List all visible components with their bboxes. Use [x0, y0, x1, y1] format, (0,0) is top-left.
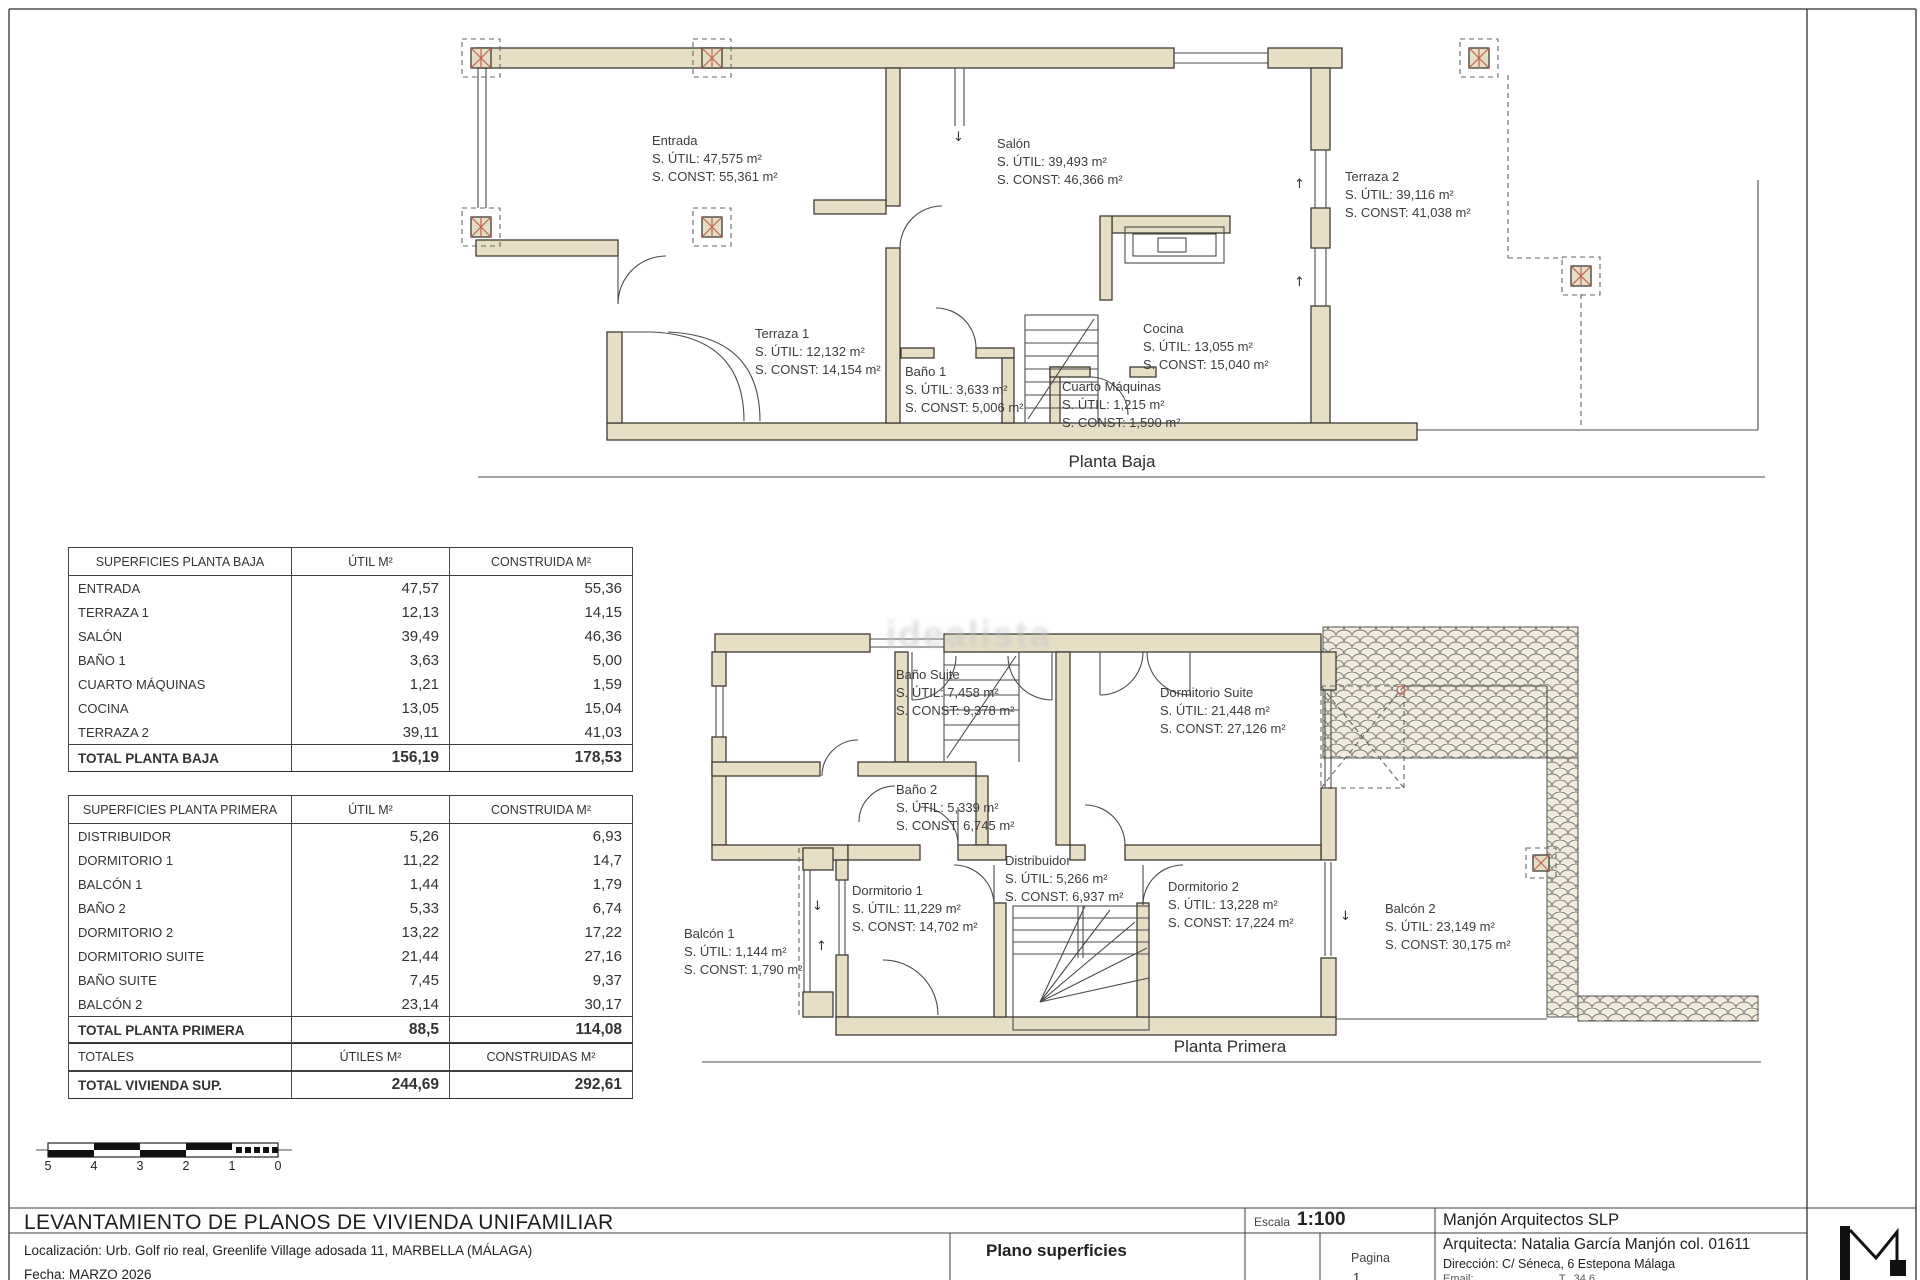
- svg-text:↓: ↓: [1340, 909, 1351, 924]
- table-cell: 1,21: [292, 672, 450, 696]
- table-cell: SALÓN: [69, 624, 292, 648]
- room-util: S. ÚTIL: 5,339 m²: [896, 799, 1014, 817]
- table-cell: 39,49: [292, 624, 450, 648]
- table-cell: 47,57: [292, 576, 450, 600]
- table-cell: 39,11: [292, 720, 450, 744]
- table-cell: COCINA: [69, 696, 292, 720]
- room-label-dormitorio-1: Dormitorio 1 S. ÚTIL: 11,229 m² S. CONST…: [852, 882, 978, 936]
- room-label-entrada: Entrada S. ÚTIL: 47,575 m² S. CONST: 55,…: [652, 132, 778, 186]
- table-cell: 1,44: [292, 872, 450, 896]
- table-cell: ÚTIL M²: [292, 548, 450, 575]
- table-cell: 46,36: [450, 624, 633, 648]
- room-util: S. ÚTIL: 23,149 m²: [1385, 918, 1511, 936]
- table-cell: CONSTRUIDA M²: [450, 796, 633, 823]
- table-cell: DORMITORIO 2: [69, 920, 292, 944]
- room-label-distribuidor: Distribuidor S. ÚTIL: 5,266 m² S. CONST:…: [1005, 852, 1123, 906]
- table-cell: 55,36: [450, 576, 633, 600]
- room-label-dormitorio-2: Dormitorio 2 S. ÚTIL: 13,228 m² S. CONST…: [1168, 878, 1294, 932]
- room-const: S. CONST: 6,745 m²: [896, 817, 1014, 835]
- table-cell: CONSTRUIDAS M²: [450, 1043, 633, 1070]
- room-util: S. ÚTIL: 7,458 m²: [896, 684, 1014, 702]
- table-header-row: SUPERFICIES PLANTA BAJAÚTIL M²CONSTRUIDA…: [69, 547, 633, 576]
- planta-baja-title: Planta Baja: [1069, 452, 1156, 472]
- table-cell: ÚTILES M²: [292, 1043, 450, 1070]
- room-name: Balcón 2: [1385, 900, 1511, 918]
- room-util: S. ÚTIL: 39,116 m²: [1345, 186, 1471, 204]
- table-cell: 21,44: [292, 944, 450, 968]
- room-label-bano-1: Baño 1 S. ÚTIL: 3,633 m² S. CONST: 5,006…: [905, 363, 1023, 417]
- location-line: Localización: Urb. Golf rio real, Greenl…: [24, 1243, 532, 1258]
- table-totales: TOTALESÚTILES M²CONSTRUIDAS M²TOTAL VIVI…: [68, 1042, 633, 1099]
- table-row: DORMITORIO 213,2217,22: [69, 920, 633, 944]
- table-cell: DORMITORIO 1: [69, 848, 292, 872]
- room-name: Terraza 1: [755, 325, 881, 343]
- room-name: Dormitorio 2: [1168, 878, 1294, 896]
- table-row: SALÓN39,4946,36: [69, 624, 633, 648]
- table-cell: 15,04: [450, 696, 633, 720]
- table-row: TERRAZA 239,1141,03: [69, 720, 633, 744]
- planta-primera-title: Planta Primera: [1174, 1037, 1286, 1057]
- room-const: S. CONST: 46,366 m²: [997, 171, 1123, 189]
- table-row: DISTRIBUIDOR5,266,93: [69, 824, 633, 848]
- table-total-row: TOTAL PLANTA PRIMERA88,5114,08: [69, 1016, 633, 1044]
- table-cell: 9,37: [450, 968, 633, 992]
- table-row: BAÑO 13,635,00: [69, 648, 633, 672]
- scale-label: 1: [229, 1159, 236, 1173]
- scale-value: 1:100: [1297, 1209, 1346, 1231]
- room-const: S. CONST: 5,006 m²: [905, 399, 1023, 417]
- table-cell: 244,69: [292, 1072, 450, 1098]
- svg-text:↑: ↑: [816, 939, 827, 954]
- page-field-label: Pagina: [1351, 1251, 1390, 1265]
- date-line: Fecha: MARZO 2026: [24, 1267, 152, 1280]
- table-cell: CUARTO MÁQUINAS: [69, 672, 292, 696]
- table-cell: 23,14: [292, 992, 450, 1016]
- table-row: BALCÓN 11,441,79: [69, 872, 633, 896]
- room-label-bano-suite: Baño Suite S. ÚTIL: 7,458 m² S. CONST: 9…: [896, 666, 1014, 720]
- table-header-row: TOTALESÚTILES M²CONSTRUIDAS M²: [69, 1042, 633, 1071]
- table-cell: DISTRIBUIDOR: [69, 824, 292, 848]
- room-util: S. ÚTIL: 13,228 m²: [1168, 896, 1294, 914]
- table-cell: 17,22: [450, 920, 633, 944]
- table-cell: BAÑO 2: [69, 896, 292, 920]
- table-cell: ÚTIL M²: [292, 796, 450, 823]
- table-row: TERRAZA 112,1314,15: [69, 600, 633, 624]
- room-util: S. ÚTIL: 21,448 m²: [1160, 702, 1286, 720]
- table-cell: 3,63: [292, 648, 450, 672]
- table-cell: 11,22: [292, 848, 450, 872]
- table-planta-primera: SUPERFICIES PLANTA PRIMERAÚTIL M²CONSTRU…: [68, 795, 633, 1044]
- table-cell: 7,45: [292, 968, 450, 992]
- table-cell: 5,33: [292, 896, 450, 920]
- address-line: Dirección: C/ Séneca, 6 Estepona Málaga: [1443, 1257, 1675, 1271]
- scale-label: 3: [137, 1159, 144, 1173]
- table-cell: 1,79: [450, 872, 633, 896]
- firm-logo: [1840, 1226, 1906, 1280]
- room-label-cuarto-maquinas: Cuarto Máquinas S. ÚTIL: 1,215 m² S. CON…: [1062, 378, 1180, 432]
- room-const: S. CONST: 6,937 m²: [1005, 888, 1123, 906]
- table-row: DORMITORIO SUITE21,4427,16: [69, 944, 633, 968]
- table-header-row: SUPERFICIES PLANTA PRIMERAÚTIL M²CONSTRU…: [69, 795, 633, 824]
- table-cell: 12,13: [292, 600, 450, 624]
- table-cell: BAÑO SUITE: [69, 968, 292, 992]
- room-const: S. CONST: 14,702 m²: [852, 918, 978, 936]
- table-planta-baja: SUPERFICIES PLANTA BAJAÚTIL M²CONSTRUIDA…: [68, 547, 633, 772]
- table-cell: BALCÓN 1: [69, 872, 292, 896]
- room-const: S. CONST: 14,154 m²: [755, 361, 881, 379]
- plan-sheet: .wall{fill:#e6dfc6;stroke:#3e3a32;stroke…: [0, 0, 1920, 1280]
- room-name: Dormitorio Suite: [1160, 684, 1286, 702]
- table-cell: TERRAZA 1: [69, 600, 292, 624]
- architect-line: Arquitecta: Natalia García Manjón col. 0…: [1443, 1236, 1750, 1254]
- table-cell: SUPERFICIES PLANTA PRIMERA: [69, 796, 292, 823]
- terrace-boundary: [1417, 75, 1758, 430]
- room-util: S. ÚTIL: 12,132 m²: [755, 343, 881, 361]
- window: [478, 53, 1326, 306]
- scale-label: 4: [91, 1159, 98, 1173]
- room-label-terraza-1: Terraza 1 S. ÚTIL: 12,132 m² S. CONST: 1…: [755, 325, 881, 379]
- table-cell: 14,15: [450, 600, 633, 624]
- room-util: S. ÚTIL: 1,144 m²: [684, 943, 802, 961]
- room-util: S. ÚTIL: 5,266 m²: [1005, 870, 1123, 888]
- room-name: Distribuidor: [1005, 852, 1123, 870]
- room-util: S. ÚTIL: 13,055 m²: [1143, 338, 1269, 356]
- table-cell: DORMITORIO SUITE: [69, 944, 292, 968]
- watermark: idealista: [886, 614, 1052, 656]
- svg-text:↓: ↓: [812, 899, 823, 914]
- table-cell: 14,7: [450, 848, 633, 872]
- room-name: Baño Suite: [896, 666, 1014, 684]
- room-name: Cocina: [1143, 320, 1269, 338]
- table-cell: TOTAL VIVIENDA SUP.: [69, 1072, 292, 1098]
- table-row: BAÑO 25,336,74: [69, 896, 633, 920]
- room-const: S. CONST: 1,590 m²: [1062, 414, 1180, 432]
- table-cell: BAÑO 1: [69, 648, 292, 672]
- scale-label: 2: [183, 1159, 190, 1173]
- table-cell: 30,17: [450, 992, 633, 1016]
- room-label-dormitorio-suite: Dormitorio Suite S. ÚTIL: 21,448 m² S. C…: [1160, 684, 1286, 738]
- firm-name: Manjón Arquitectos SLP: [1443, 1211, 1619, 1230]
- room-name: Baño 2: [896, 781, 1014, 799]
- table-cell: 178,53: [450, 745, 633, 771]
- scale-label: 0: [275, 1159, 282, 1173]
- table-cell: 41,03: [450, 720, 633, 744]
- table-cell: 88,5: [292, 1017, 450, 1043]
- room-const: S. CONST: 9,378 m²: [896, 702, 1014, 720]
- table-cell: TOTALES: [69, 1043, 292, 1070]
- table-row: BALCÓN 223,1430,17: [69, 992, 633, 1016]
- room-label-balcon-1: Balcón 1 S. ÚTIL: 1,144 m² S. CONST: 1,7…: [684, 925, 802, 979]
- room-label-salon: Salón S. ÚTIL: 39,493 m² S. CONST: 46,36…: [997, 135, 1123, 189]
- table-cell: ENTRADA: [69, 576, 292, 600]
- room-const: S. CONST: 15,040 m²: [1143, 356, 1269, 374]
- room-const: S. CONST: 1,790 m²: [684, 961, 802, 979]
- scale-field-label: Escala: [1254, 1215, 1290, 1229]
- room-label-bano-2: Baño 2 S. ÚTIL: 5,339 m² S. CONST: 6,745…: [896, 781, 1014, 835]
- table-cell: 292,61: [450, 1072, 633, 1098]
- room-name: Cuarto Máquinas: [1062, 378, 1180, 396]
- page-number: 1: [1353, 1270, 1360, 1280]
- room-const: S. CONST: 27,126 m²: [1160, 720, 1286, 738]
- room-util: S. ÚTIL: 39,493 m²: [997, 153, 1123, 171]
- room-name: Balcón 1: [684, 925, 802, 943]
- room-const: S. CONST: 17,224 m²: [1168, 914, 1294, 932]
- room-name: Baño 1: [905, 363, 1023, 381]
- table-cell: 13,05: [292, 696, 450, 720]
- table-total-row: TOTAL PLANTA BAJA156,19178,53: [69, 744, 633, 772]
- table-row: BAÑO SUITE7,459,37: [69, 968, 633, 992]
- table-row: DORMITORIO 111,2214,7: [69, 848, 633, 872]
- table-cell: 5,00: [450, 648, 633, 672]
- contact-line: Email: .......................... T. .34…: [1443, 1273, 1629, 1280]
- project-title: LEVANTAMIENTO DE PLANOS DE VIVIENDA UNIF…: [24, 1211, 613, 1235]
- room-const: S. CONST: 55,361 m²: [652, 168, 778, 186]
- room-name: Entrada: [652, 132, 778, 150]
- room-util: S. ÚTIL: 47,575 m²: [652, 150, 778, 168]
- table-row: COCINA13,0515,04: [69, 696, 633, 720]
- table-cell: 156,19: [292, 745, 450, 771]
- room-util: S. ÚTIL: 3,633 m²: [905, 381, 1023, 399]
- table-cell: CONSTRUIDA M²: [450, 548, 633, 575]
- table-cell: TOTAL PLANTA BAJA: [69, 745, 292, 771]
- table-cell: 6,93: [450, 824, 633, 848]
- table-cell: 6,74: [450, 896, 633, 920]
- plan-name: Plano superficies: [986, 1241, 1127, 1261]
- room-const: S. CONST: 41,038 m²: [1345, 204, 1471, 222]
- arrow-up-icon: ↑: [1294, 275, 1305, 290]
- balcony-1: ↓ ↑: [799, 848, 833, 1017]
- scale-bar: [36, 1143, 292, 1157]
- room-const: S. CONST: 30,175 m²: [1385, 936, 1511, 954]
- table-cell: 13,22: [292, 920, 450, 944]
- table-total-row: TOTAL VIVIENDA SUP.244,69292,61: [69, 1071, 633, 1099]
- table-cell: BALCÓN 2: [69, 992, 292, 1016]
- room-name: Dormitorio 1: [852, 882, 978, 900]
- room-name: Terraza 2: [1345, 168, 1471, 186]
- room-util: S. ÚTIL: 11,229 m²: [852, 900, 978, 918]
- arrow-down-icon: ↓: [953, 130, 964, 145]
- staircase: [1013, 906, 1149, 1030]
- scale-label: 5: [45, 1159, 52, 1173]
- room-util: S. ÚTIL: 1,215 m²: [1062, 396, 1180, 414]
- table-cell: 114,08: [450, 1017, 633, 1043]
- table-cell: 5,26: [292, 824, 450, 848]
- table-cell: TOTAL PLANTA PRIMERA: [69, 1017, 292, 1043]
- table-cell: SUPERFICIES PLANTA BAJA: [69, 548, 292, 575]
- table-cell: 1,59: [450, 672, 633, 696]
- table-row: ENTRADA47,5755,36: [69, 576, 633, 600]
- room-name: Salón: [997, 135, 1123, 153]
- table-cell: 27,16: [450, 944, 633, 968]
- table-cell: TERRAZA 2: [69, 720, 292, 744]
- room-label-cocina: Cocina S. ÚTIL: 13,055 m² S. CONST: 15,0…: [1143, 320, 1269, 374]
- table-row: CUARTO MÁQUINAS1,211,59: [69, 672, 633, 696]
- arrow-up-icon: ↑: [1294, 177, 1305, 192]
- room-label-terraza-2: Terraza 2 S. ÚTIL: 39,116 m² S. CONST: 4…: [1345, 168, 1471, 222]
- room-label-balcon-2: Balcón 2 S. ÚTIL: 23,149 m² S. CONST: 30…: [1385, 900, 1511, 954]
